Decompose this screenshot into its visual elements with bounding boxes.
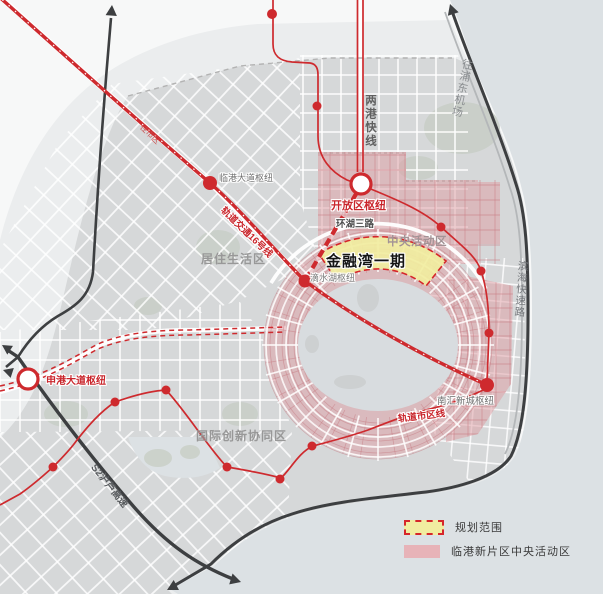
planning-scope-swatch-icon [404, 520, 444, 535]
legend-label: 规划范围 [455, 519, 503, 535]
shengang-hub-icon [18, 369, 38, 389]
legend-item-planning-scope: 规划范围 [404, 519, 571, 535]
legend-item-central-zone: 临港新片区中央活动区 [404, 543, 571, 559]
legend: 规划范围 临港新片区中央活动区 [404, 519, 571, 567]
map-artwork [0, 0, 603, 594]
central-zone-swatch-icon [404, 545, 440, 558]
planning-map: 两港快线 往浦东机场 往市区 开放区枢纽 环湖三路 中央活动区 金融湾一期 滴水… [0, 0, 603, 594]
legend-label: 临港新片区中央活动区 [451, 543, 571, 559]
kaifangqu-hub-icon [351, 174, 371, 194]
